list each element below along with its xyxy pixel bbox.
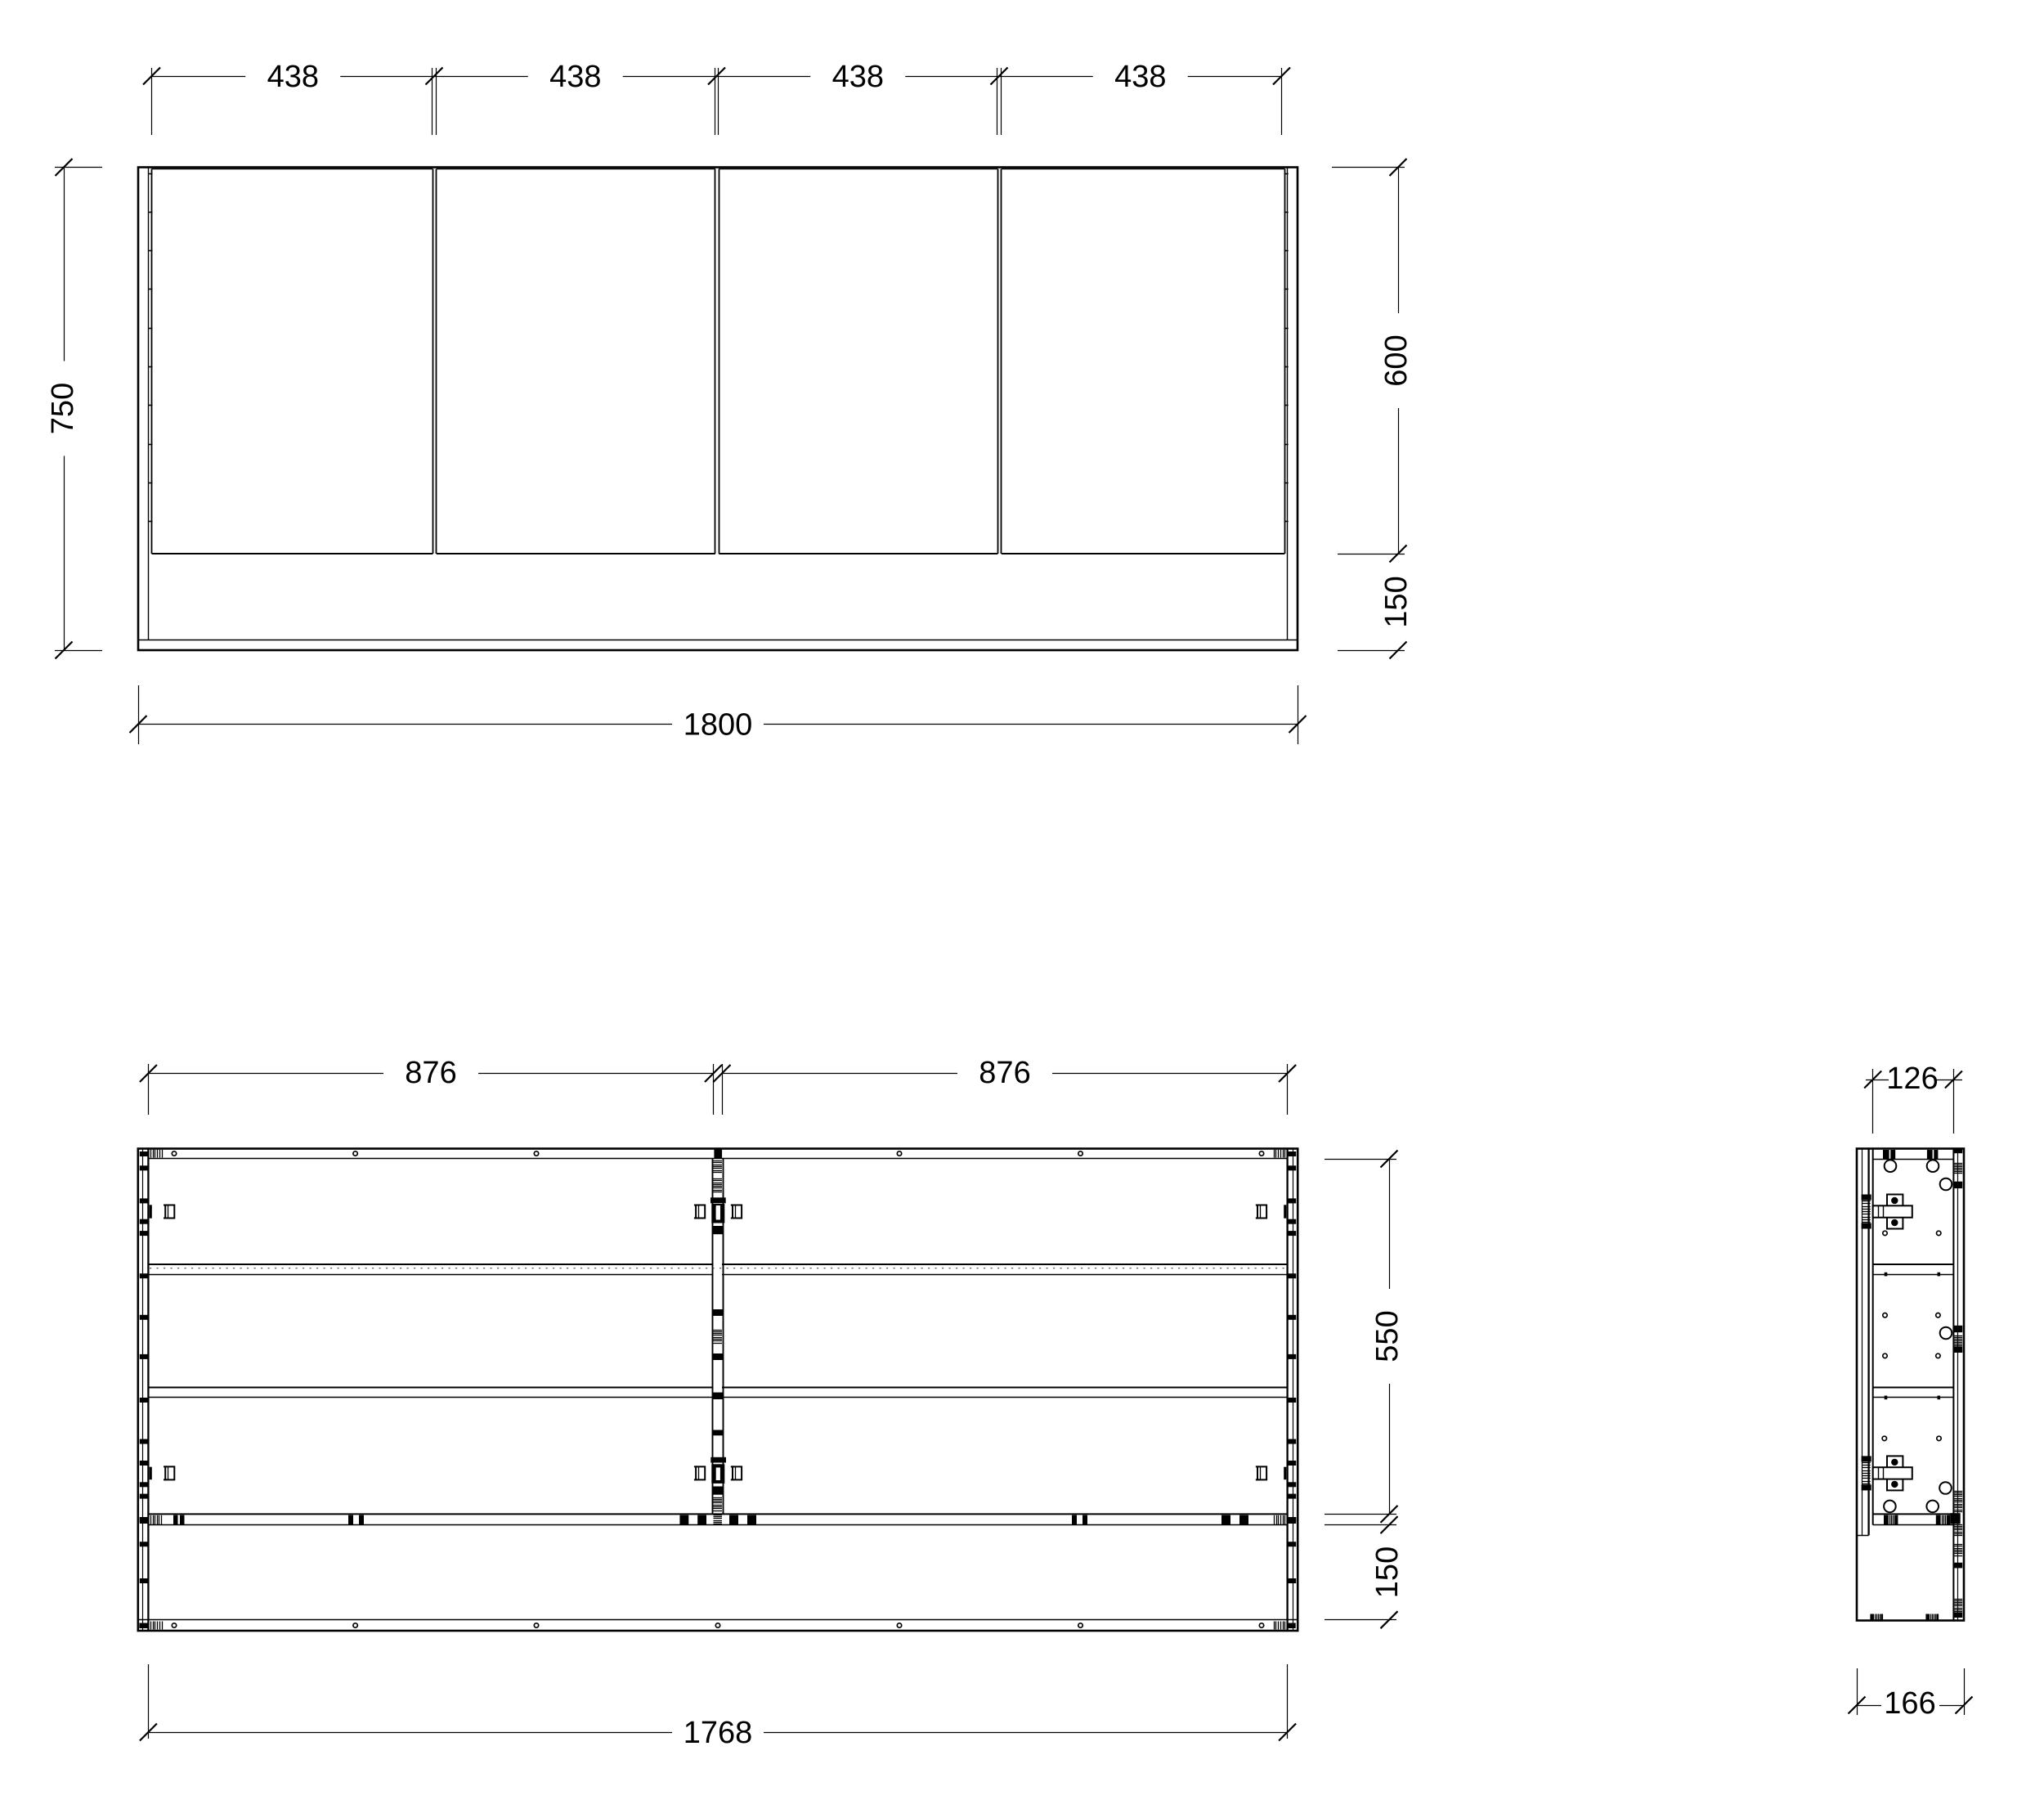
svg-text:1800: 1800 <box>684 707 753 742</box>
svg-text:876: 876 <box>979 1056 1030 1090</box>
svg-text:126: 126 <box>1886 1062 1938 1096</box>
svg-text:150: 150 <box>1379 576 1414 627</box>
svg-text:150: 150 <box>1370 1546 1405 1598</box>
svg-text:1768: 1768 <box>684 1716 753 1750</box>
svg-text:750: 750 <box>46 383 80 434</box>
svg-text:438: 438 <box>832 60 884 94</box>
svg-text:438: 438 <box>549 60 601 94</box>
svg-text:876: 876 <box>405 1056 456 1090</box>
svg-text:438: 438 <box>267 60 319 94</box>
svg-text:166: 166 <box>1884 1686 1935 1721</box>
svg-text:438: 438 <box>1114 60 1166 94</box>
svg-text:550: 550 <box>1370 1310 1405 1362</box>
svg-text:600: 600 <box>1379 334 1414 386</box>
